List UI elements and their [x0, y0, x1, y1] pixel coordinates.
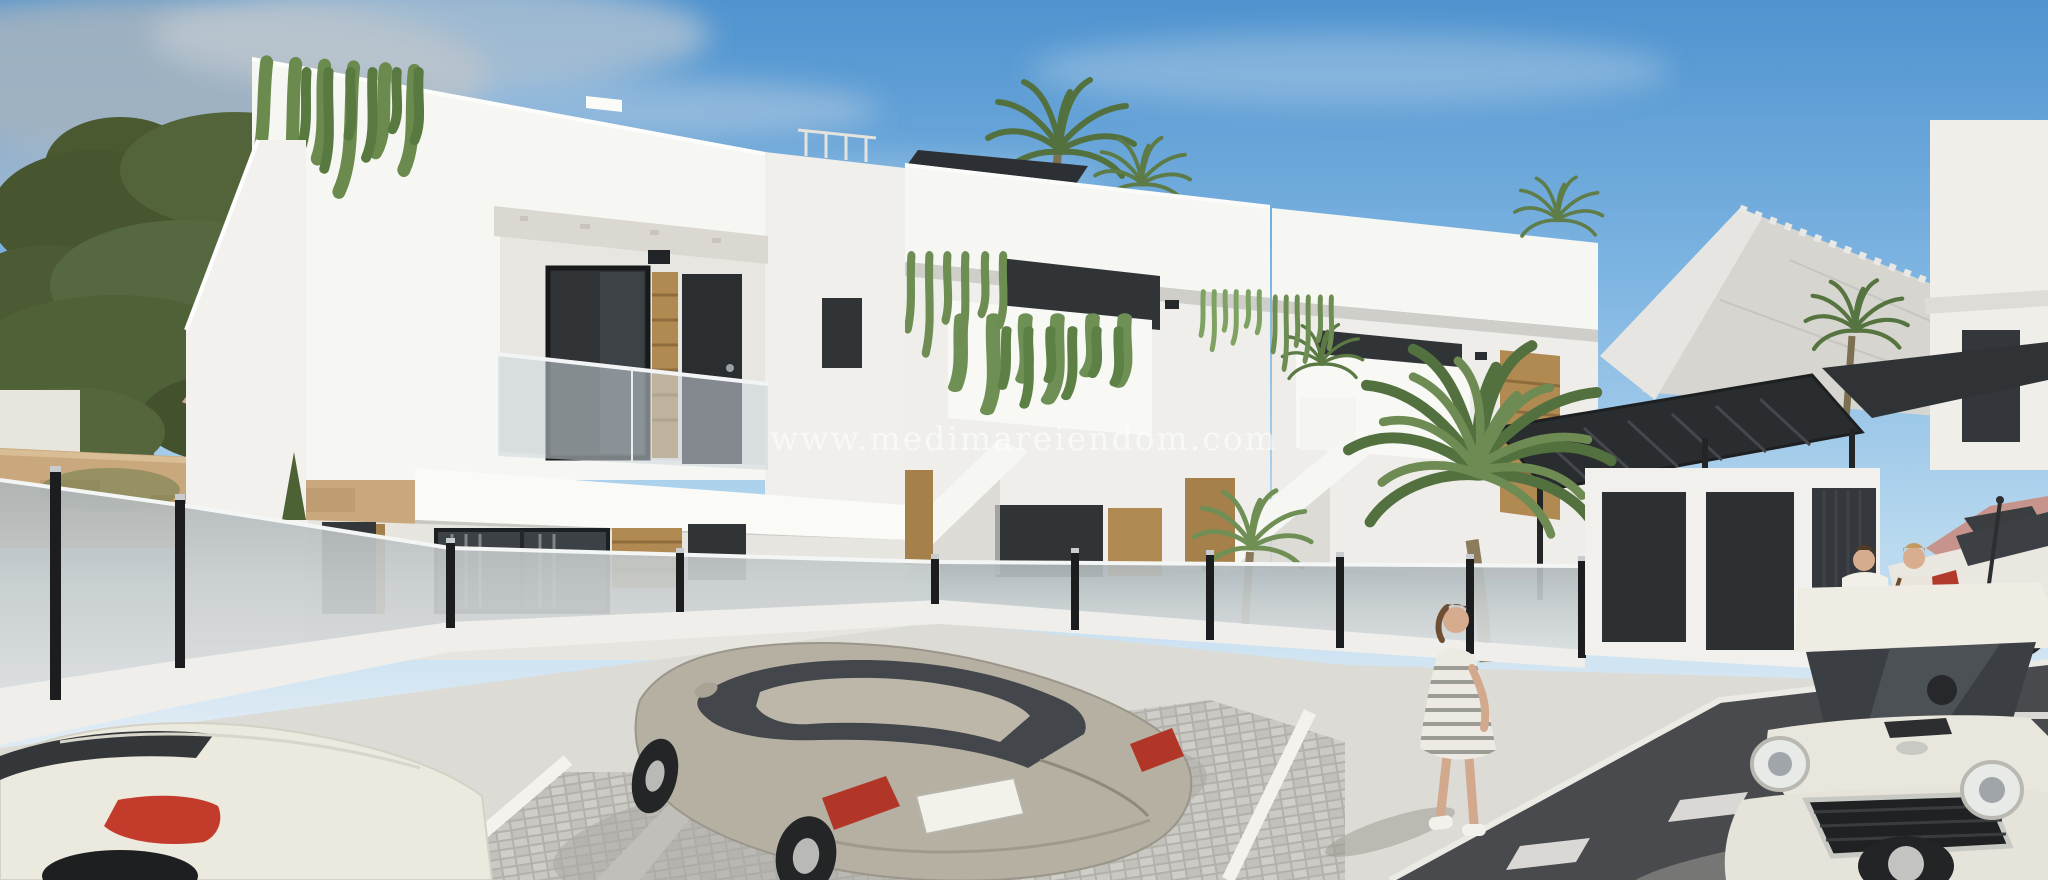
wall-lamp	[1475, 352, 1487, 360]
leg	[1469, 758, 1474, 824]
mini-roof	[1795, 582, 2048, 652]
man-head	[1853, 549, 1875, 571]
wall-lamp	[648, 250, 670, 264]
wall-lamp	[1165, 300, 1179, 309]
sneaker	[1462, 824, 1486, 836]
bonnet-badge	[1896, 741, 1928, 755]
woman-head	[1903, 547, 1925, 569]
garage-door	[1706, 492, 1794, 650]
driver-silhouette	[1927, 675, 1957, 705]
watermark-text: www.medimareiendom.com	[770, 419, 1278, 458]
garage-door	[1602, 492, 1686, 642]
door-handle	[726, 364, 734, 372]
balcony-planter	[1300, 398, 1356, 450]
tower-door	[822, 298, 862, 368]
render-image: www.medimareiendom.com	[0, 0, 2048, 880]
scene-svg: www.medimareiendom.com	[0, 0, 2048, 880]
